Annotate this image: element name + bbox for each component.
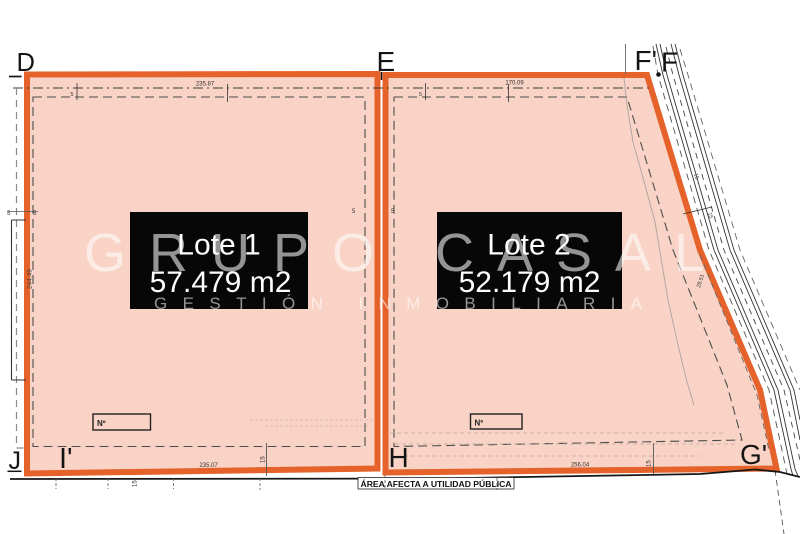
svg-text:D: D [17, 49, 35, 77]
svg-text:Nº: Nº [97, 419, 106, 428]
svg-text:256.04: 256.04 [571, 463, 590, 469]
svg-text:15: 15 [647, 460, 653, 467]
svg-text:235.87: 235.87 [196, 82, 215, 88]
svg-text:E: E [377, 46, 396, 77]
svg-text:Nº: Nº [475, 419, 484, 428]
svg-text:GRUPO CASAL: GRUPO CASAL [84, 223, 727, 283]
svg-text:GESTIÓN INMOBILIARIA: GESTIÓN INMOBILIARIA [154, 294, 658, 313]
svg-text:I': I' [59, 443, 73, 475]
svg-text:H: H [389, 442, 409, 473]
svg-text:F': F' [635, 45, 657, 76]
svg-text:G': G' [740, 439, 767, 470]
svg-text:15: 15 [261, 456, 267, 463]
svg-text:5: 5 [419, 92, 422, 98]
svg-text:244.49: 244.49 [27, 269, 34, 289]
svg-text:ÁREA AFECTA A UTILIDAD PÚBLICA: ÁREA AFECTA A UTILIDAD PÚBLICA [360, 478, 511, 489]
svg-text:235.07: 235.07 [199, 463, 218, 469]
svg-text:15: 15 [133, 480, 139, 487]
svg-text:5: 5 [71, 92, 74, 98]
svg-text:F: F [661, 47, 678, 78]
